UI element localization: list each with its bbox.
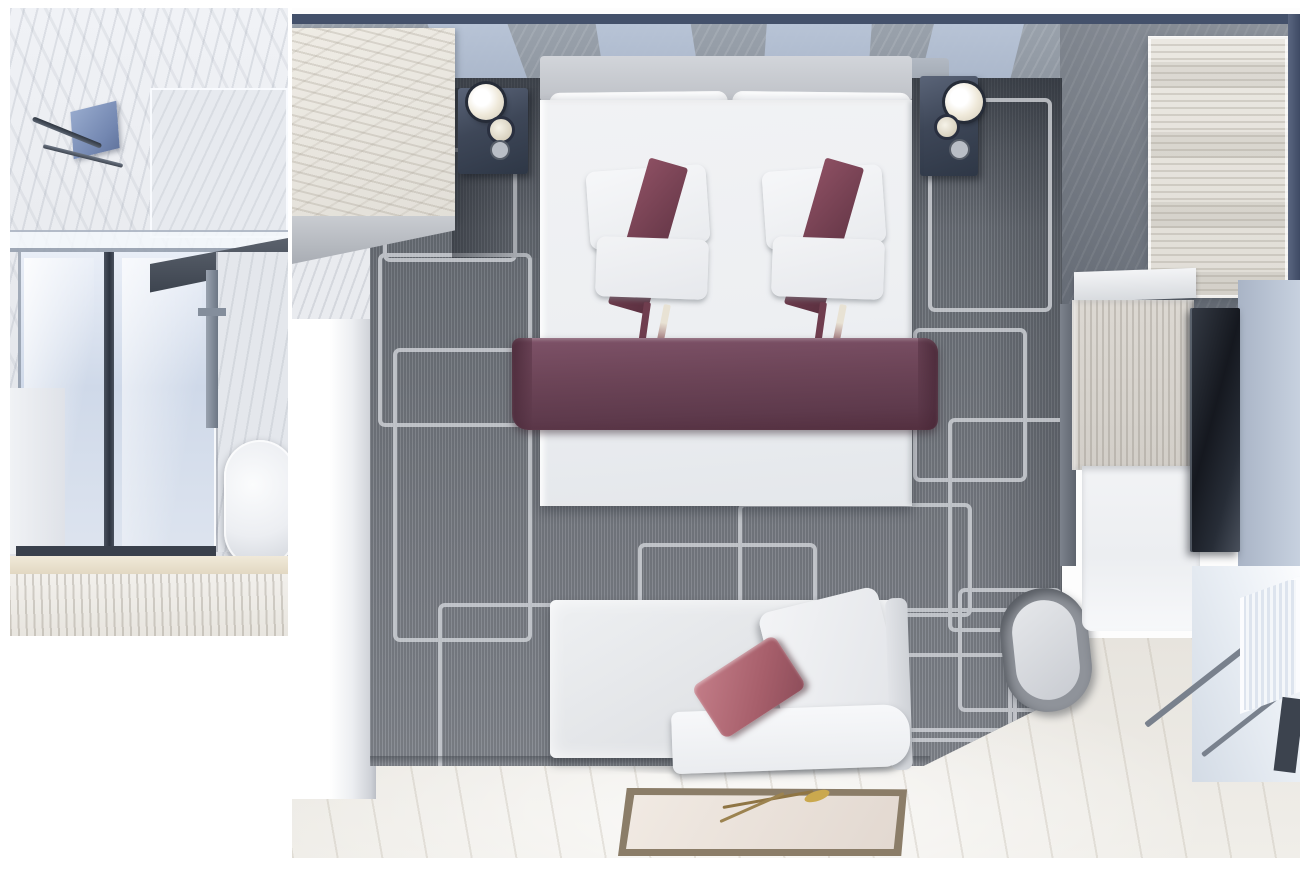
pillow-cluster-right xyxy=(760,168,890,318)
threshold-strip xyxy=(10,556,288,574)
vanity-block xyxy=(10,388,65,554)
sofa-seat-cushion xyxy=(671,704,911,774)
shower-door-frame xyxy=(104,252,114,552)
shower-door-track xyxy=(16,546,216,556)
lamp-knob-left xyxy=(490,140,510,160)
shower-head xyxy=(70,101,119,160)
wall-tv xyxy=(1190,308,1240,552)
stool-cushion xyxy=(1009,597,1083,703)
accent-pillow xyxy=(771,236,885,300)
desk-shelf xyxy=(1074,268,1196,302)
marble-tile-panel xyxy=(150,88,288,238)
vanity-desk-lower xyxy=(1082,466,1200,631)
wood-floor-strip xyxy=(10,574,288,636)
main-room-view xyxy=(292,8,1300,858)
vanity-desk-upper xyxy=(1072,300,1194,470)
wardrobe-right xyxy=(1148,36,1288,298)
lamp-ring-right xyxy=(934,114,960,140)
wardrobe-cabinet-left xyxy=(292,28,455,218)
accent-pillow xyxy=(595,236,709,300)
toilet xyxy=(224,440,288,568)
pipe-joint xyxy=(198,308,226,316)
bed-runner xyxy=(512,338,938,430)
table-lamp-left xyxy=(468,84,504,120)
glass-sheen xyxy=(122,258,202,546)
runner-fold xyxy=(512,338,532,430)
wall-pipe xyxy=(206,270,218,428)
lamp-knob-right xyxy=(949,139,970,160)
pillow-cluster-left xyxy=(584,168,714,318)
runner-fold xyxy=(918,338,938,430)
cabin-floorplan-render xyxy=(0,0,1308,870)
sheer-curtain-window xyxy=(1240,576,1300,714)
bathroom-inset-view xyxy=(10,8,288,636)
